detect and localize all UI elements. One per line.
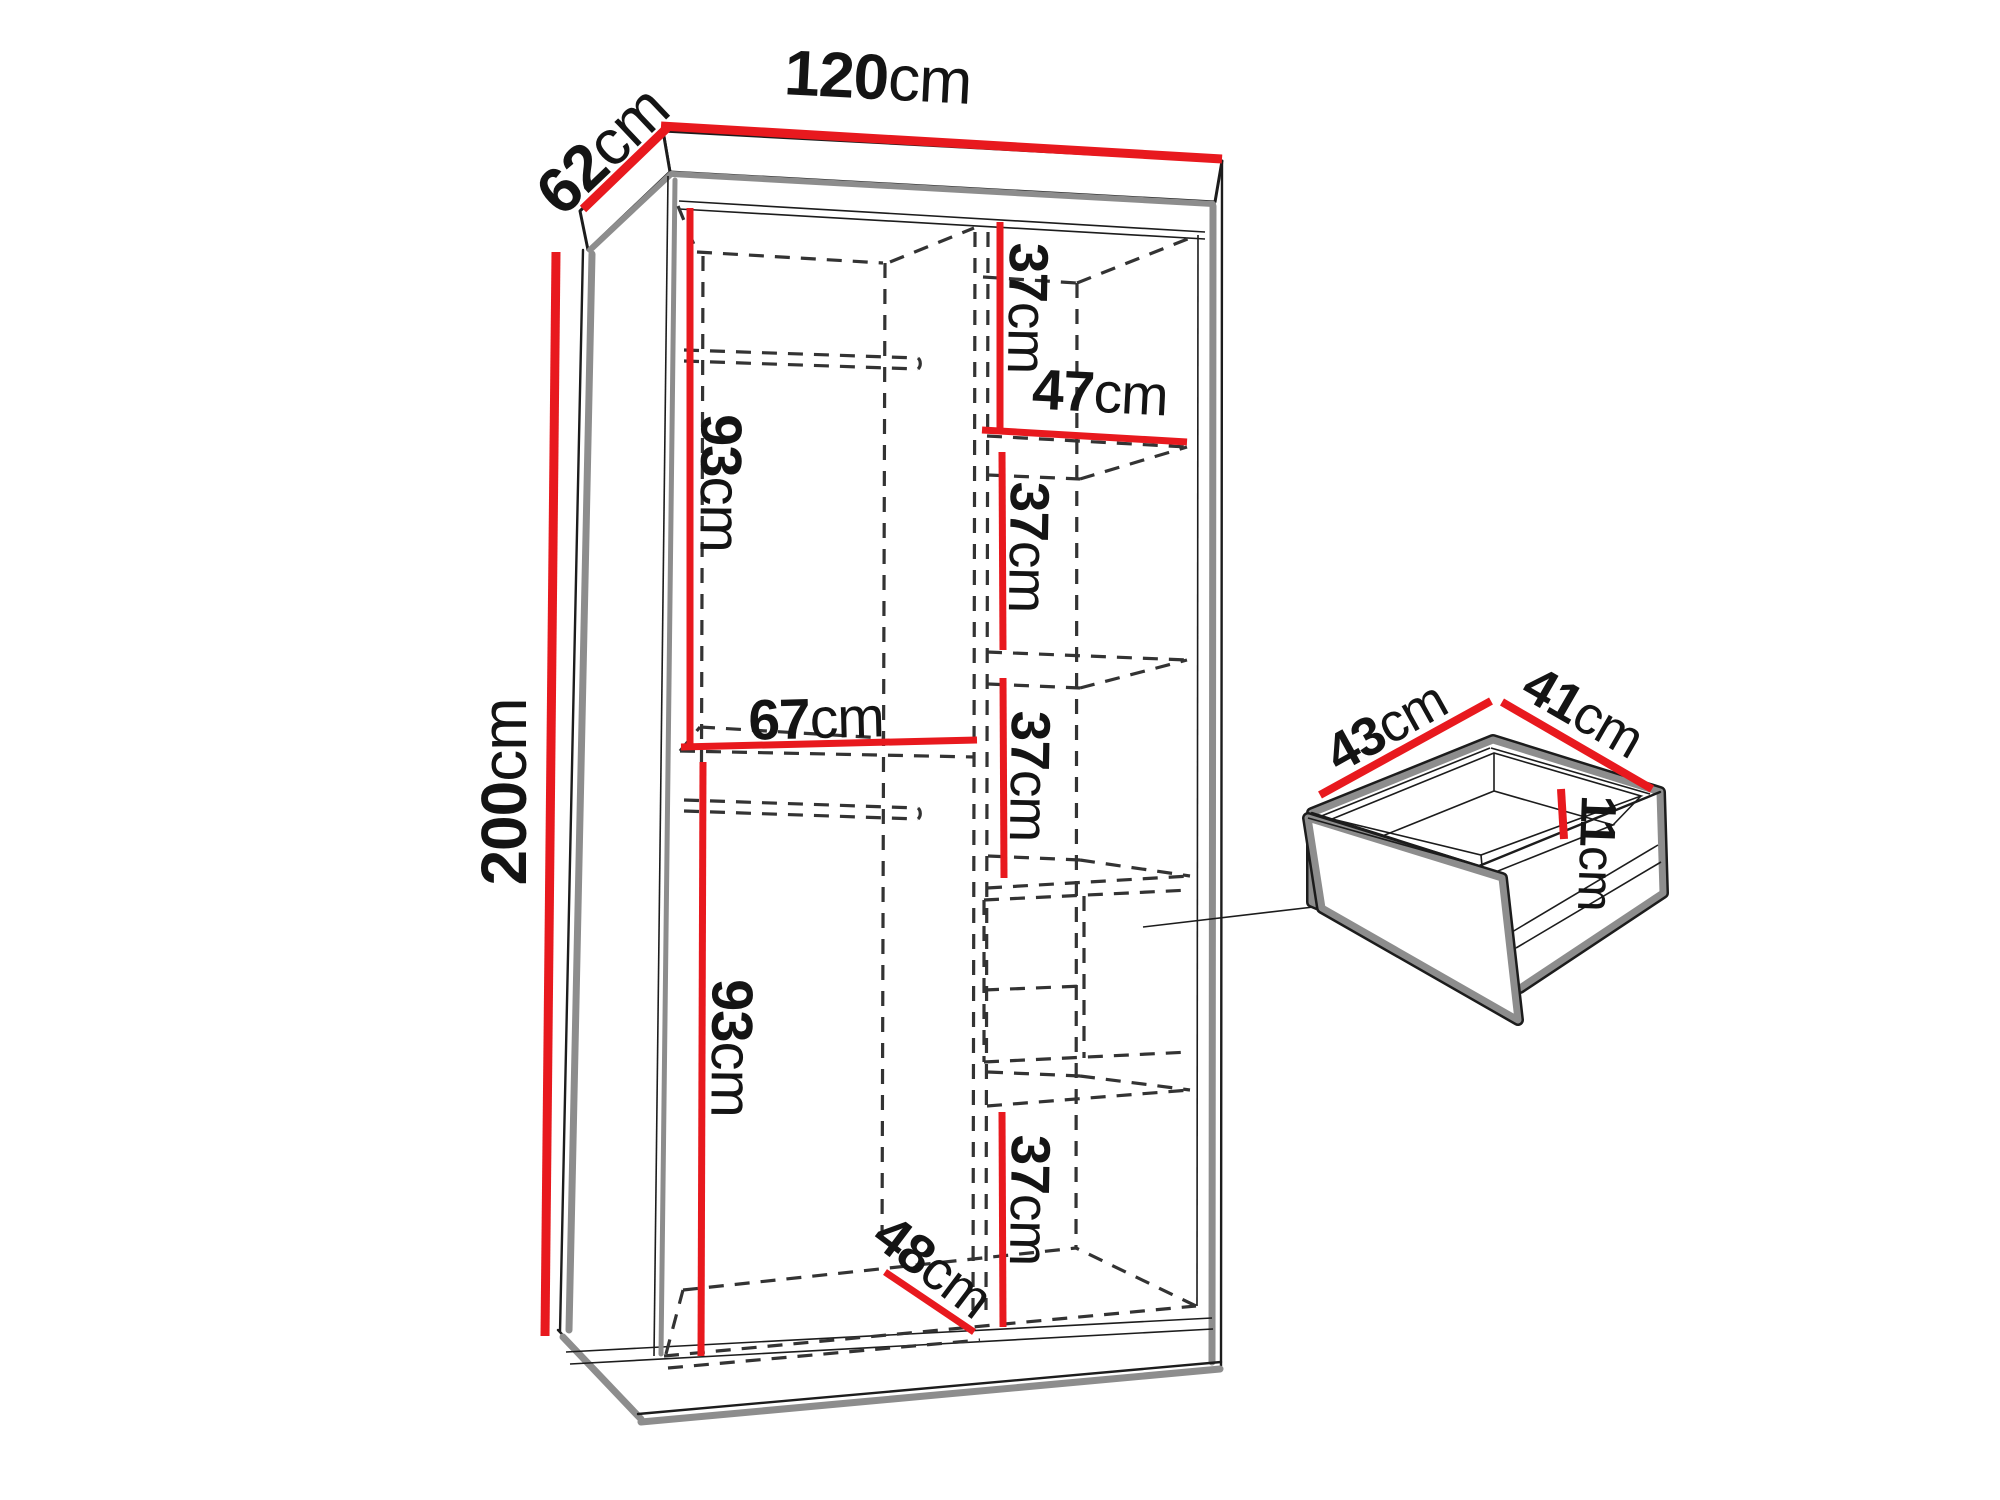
wardrobe-dimension-diagram: 120cm 62cm 200cm 93cm 67cm 93cm 48cm 37c… bbox=[0, 0, 2000, 1500]
dimension-diagram-page: 120cm 62cm 200cm 93cm 67cm 93cm 48cm 37c… bbox=[0, 0, 2000, 1500]
dim-label-height-200: 200cm bbox=[468, 698, 540, 885]
right-shelf-2 bbox=[987, 652, 1187, 688]
ceiling-right-depth-line bbox=[1077, 236, 1195, 283]
dim-label-depth-48: 48cm bbox=[862, 1202, 1004, 1330]
dim-line-shelf-47 bbox=[982, 430, 1187, 442]
dim-label-shelf-67: 67cm bbox=[747, 685, 884, 753]
dim-label-lower-93: 93cm bbox=[699, 979, 765, 1117]
bottom-edge bbox=[638, 1362, 1221, 1414]
inner-right-edge bbox=[1197, 235, 1198, 1306]
hidden-drawer-box bbox=[984, 890, 1190, 1062]
dim-label-gap-37-4: 37cm bbox=[998, 1134, 1062, 1266]
dim-line-drawer-11 bbox=[1561, 789, 1564, 839]
floor-right-depth-line bbox=[1076, 1248, 1196, 1306]
back-right-corner bbox=[1076, 283, 1077, 1248]
partition-back-edge bbox=[882, 263, 885, 1251]
ceiling-back-edge-left bbox=[697, 252, 883, 263]
drawer-pointer-line bbox=[1143, 906, 1322, 927]
partition-front-edge-2 bbox=[986, 232, 988, 1310]
floor-front-edge bbox=[664, 1306, 1196, 1356]
dim-label-gap-37-2: 37cm bbox=[997, 481, 1061, 613]
floor-left-depth-line bbox=[666, 1290, 683, 1354]
partition-top-depth-line bbox=[890, 228, 974, 262]
dim-label-shelf-47: 47cm bbox=[1031, 358, 1170, 429]
dim-line-height-200 bbox=[545, 252, 556, 1336]
right-outer-edge bbox=[1221, 163, 1222, 1366]
dim-label-upper-93: 93cm bbox=[688, 414, 754, 552]
dim-label-width-120: 120cm bbox=[783, 36, 974, 118]
interior-ceiling-edge bbox=[679, 201, 1205, 232]
dim-label-drawer-11: 11cm bbox=[1567, 794, 1627, 911]
dim-label-gap-37-1: 37cm bbox=[996, 242, 1060, 374]
dim-label-gap-37-3: 37cm bbox=[998, 710, 1062, 842]
partition-front-edge-1 bbox=[973, 232, 975, 1310]
right-shelf-4 bbox=[987, 1072, 1190, 1106]
right-shelf-3 bbox=[987, 856, 1190, 888]
